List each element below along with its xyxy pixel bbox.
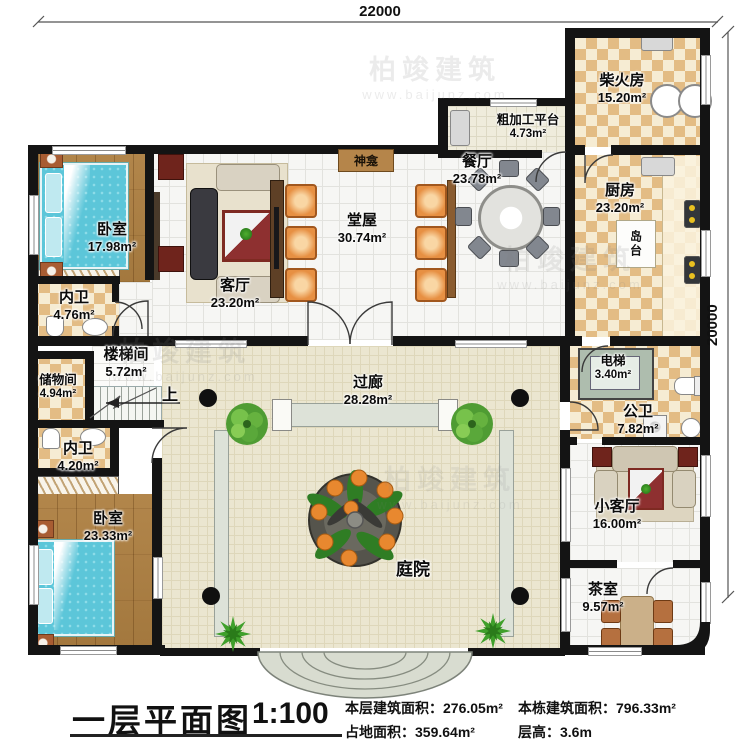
shrine-table: 神龛 (338, 149, 394, 172)
watermark: 柏竣建筑www.baijunz.com (320, 48, 550, 102)
wall-segment (565, 28, 575, 110)
pillow (37, 588, 53, 624)
room-label-bath2: 内卫4.20m² (57, 440, 98, 473)
stairs-up-label: 上 (162, 387, 178, 406)
plant (240, 228, 252, 240)
hall-chair (415, 226, 447, 260)
window (561, 578, 571, 632)
bedroom2-wardrobe (30, 476, 119, 496)
room-label-courtyard: 庭院 (396, 560, 430, 580)
dining-chair (499, 250, 519, 267)
hall-chair (285, 268, 317, 302)
wash-basin (681, 418, 701, 438)
dining-chair (499, 160, 519, 177)
tea-chair (653, 600, 673, 623)
wall-segment (565, 28, 710, 38)
window (60, 646, 117, 655)
toilet (674, 377, 696, 395)
stat-floor-height: 层高：3.6m (518, 722, 592, 742)
wall-segment (565, 560, 617, 568)
plan-scale: 1:100 (252, 697, 329, 731)
kitchen-sink (641, 157, 675, 176)
bed-sheet (64, 165, 90, 263)
dining-chair (455, 207, 472, 226)
window (175, 340, 247, 348)
window (455, 340, 527, 348)
room-label-smallliving: 小客厅16.00m² (593, 498, 641, 531)
window (701, 55, 711, 105)
side-table (158, 154, 184, 180)
pergola-beam (499, 430, 514, 637)
window (701, 582, 711, 624)
room-label-bedroom2: 卧室23.33m² (84, 510, 132, 543)
room-label-platform: 粗加工平台4.73m² (497, 113, 560, 141)
wall-segment (145, 152, 154, 280)
window (490, 99, 537, 107)
hall-chair (415, 184, 447, 218)
room-label-elevator: 电梯3.40m² (595, 354, 631, 382)
kitchen-island: 岛台 (616, 220, 656, 268)
window (588, 647, 642, 656)
wall-segment (611, 145, 702, 155)
plant (641, 484, 651, 494)
hall-chair (285, 226, 317, 260)
side-table (592, 447, 612, 467)
tea-table (620, 596, 654, 652)
stat-land-area: 占地面积：359.64m² (345, 722, 475, 742)
bath1-hall-floor (119, 282, 152, 338)
pergola-post (272, 399, 292, 431)
window (701, 230, 711, 277)
wall-segment (565, 336, 582, 346)
shrine-label: 神龛 (354, 152, 378, 169)
floor-plan: 神龛 岛台 (0, 0, 750, 754)
window (29, 195, 39, 255)
bed (32, 540, 114, 636)
hall-bench (447, 180, 456, 298)
pergola-beam (214, 430, 229, 637)
stove (684, 256, 701, 284)
coffee-table (222, 210, 274, 262)
wall-segment (110, 426, 119, 472)
wall-segment (673, 560, 702, 568)
platform-sink (450, 110, 470, 146)
pillow (45, 173, 62, 213)
wall-segment (85, 351, 94, 428)
room-label-tearoom: 茶室9.57m² (582, 581, 623, 614)
pergola-post (438, 399, 458, 431)
wall-segment (438, 98, 448, 158)
room-label-kitchen: 厨房23.20m² (596, 182, 644, 215)
side-table (158, 246, 184, 272)
wall-segment (28, 420, 164, 428)
room-label-storage: 储物间4.94m² (39, 373, 77, 401)
side-table (678, 447, 698, 467)
wall-segment (565, 106, 575, 338)
room-label-corridor: 过廊28.28m² (344, 374, 392, 407)
armchair (672, 470, 696, 508)
stairs (92, 386, 162, 424)
wall-segment (560, 346, 570, 402)
wall-segment (28, 276, 120, 284)
wall-segment (468, 648, 565, 656)
stat-floor-area: 本层建筑面积：276.05m² (345, 698, 503, 718)
island-label: 岛台 (628, 230, 645, 258)
room-label-dining: 餐厅23.78m² (453, 153, 501, 186)
dimension-width: 22000 (335, 3, 425, 20)
wall-segment (160, 648, 260, 656)
window (52, 146, 126, 155)
dining-chair (543, 207, 560, 226)
dimension-height: 20000 (704, 285, 721, 365)
stove (684, 200, 701, 228)
wall-segment (112, 282, 119, 302)
hall-chair (285, 184, 317, 218)
bed-sheet (54, 542, 78, 630)
window (153, 557, 163, 599)
wall-segment (565, 437, 577, 445)
stat-building-area: 本栋建筑面积：796.33m² (518, 698, 676, 718)
wall-segment (610, 336, 702, 346)
hall-cabinet (270, 180, 284, 298)
room-label-publicbath: 公卫7.82m² (617, 403, 658, 436)
pillow (45, 217, 62, 257)
room-label-bath1: 内卫4.76m² (53, 289, 94, 322)
pillow (37, 549, 53, 585)
window (29, 545, 39, 605)
room-label-firewood: 柴火房15.20m² (598, 72, 646, 105)
kitchen-counter (662, 156, 701, 336)
tv (274, 207, 279, 269)
room-label-bedroom1: 卧室17.98m² (88, 221, 136, 254)
wall-segment (28, 336, 308, 346)
room-label-hall: 堂屋30.74m² (338, 212, 386, 245)
room-label-stair: 楼梯间5.72m² (103, 346, 148, 379)
window (701, 455, 711, 517)
window (561, 468, 571, 542)
room-label-living: 客厅23.20m² (211, 277, 259, 310)
sofa (190, 188, 218, 280)
title-underline (70, 734, 342, 737)
wall-segment (602, 437, 702, 445)
wall-segment (575, 145, 585, 155)
hall-chair (415, 268, 447, 302)
